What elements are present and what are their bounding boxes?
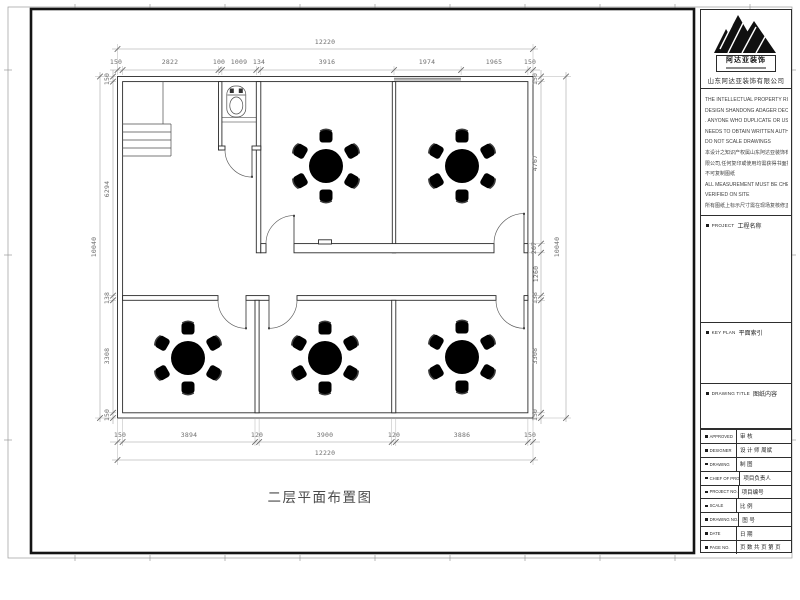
- bullet-icon: [706, 224, 709, 227]
- disclaimer-line: ALL MEASUREMENT MUST BE CHECKED AND: [705, 180, 788, 191]
- dim-label: 10040: [90, 237, 98, 258]
- row-label: CHIEF OF PRO: [710, 476, 740, 481]
- dim-label: 1260: [532, 266, 540, 282]
- bullet-icon: [705, 505, 708, 508]
- row-label: PROJECT NO.: [710, 489, 738, 494]
- bullet-icon: [705, 546, 708, 549]
- disclaimer-line: 不可复制图纸: [705, 169, 788, 180]
- drawing-title-section: DRAWING TITLE 图纸内容: [701, 384, 791, 429]
- bullet-icon: [706, 392, 709, 395]
- dim-label: 150: [524, 431, 536, 439]
- info-row: APPROVED 审 核: [701, 429, 791, 443]
- row-value: 制 图: [737, 460, 753, 468]
- dim-label: 150: [531, 409, 539, 421]
- dim-label: 3894: [181, 431, 197, 439]
- info-row: PROJECT NO. 项目编号: [701, 485, 791, 499]
- dim-label: 12220: [315, 38, 336, 46]
- company-logo-mountains-icon: [714, 13, 778, 53]
- section-label-cn: 图纸内容: [753, 389, 777, 398]
- section-label-en: PROJECT: [712, 223, 735, 228]
- project-section: PROJECT 工程名称: [701, 216, 791, 323]
- dim-label: 3886: [454, 431, 470, 439]
- bullet-icon: [706, 331, 709, 334]
- row-value: 比 例: [737, 502, 753, 510]
- bullet-icon: [705, 518, 708, 521]
- bullet-icon: [705, 491, 708, 494]
- dim-label: 3308: [531, 348, 539, 364]
- bullet-icon: [705, 532, 708, 535]
- title-block: 阿达亚装饰 山东阿达亚装饰有限公司 THE INTELLECTUAL PROPE…: [700, 9, 792, 553]
- row-label: DRAWING NO.: [710, 517, 739, 522]
- section-label-cn: 平面索引: [739, 328, 763, 337]
- row-value: 页 数 共 页 第 页: [737, 543, 781, 551]
- disclaimer-line: 本设计之知识产权属山东阿达亚装饰有: [705, 148, 788, 159]
- dim-label: 1009: [231, 58, 247, 66]
- dim-label: 3900: [317, 431, 333, 439]
- section-label-en: KEY PLAN: [712, 330, 736, 335]
- dim-label: 1965: [486, 58, 502, 66]
- dim-label: 10040: [553, 237, 561, 258]
- dim-label: 150: [110, 58, 122, 66]
- dim-label: 6294: [103, 181, 111, 197]
- key-plan-section: KEY PLAN 平面索引: [701, 323, 791, 384]
- row-label: SCALE: [710, 503, 724, 508]
- dim-label: 138: [531, 292, 539, 304]
- disclaimer-line: 限公司,任何复印或使用均需获得书面授权.: [705, 159, 788, 170]
- info-row: SCALE 比 例: [701, 498, 791, 512]
- dim-label: 138: [103, 292, 111, 304]
- dim-label: 150: [531, 73, 539, 85]
- dim-label: 2822: [162, 58, 178, 66]
- logo-text: 阿达亚装饰: [717, 57, 775, 65]
- row-label: APPROVED: [710, 434, 733, 439]
- dim-label: 150: [524, 58, 536, 66]
- disclaimer-line: DO NOT SCALE DRAWINGS: [705, 137, 788, 148]
- row-value: 项目编号: [739, 488, 764, 496]
- bullet-icon: [705, 463, 708, 466]
- disclaimer-line: THE INTELLECTUAL PROPERTY RIGHT OF THIS: [705, 95, 788, 106]
- logo-section: 阿达亚装饰 山东阿达亚装饰有限公司: [701, 10, 791, 89]
- section-label-en: DRAWING TITLE: [712, 391, 750, 396]
- bullet-icon: [705, 435, 708, 438]
- dim-label: 3916: [319, 58, 335, 66]
- logo-subtext-strip: [726, 67, 766, 70]
- row-value: 项目负责人: [740, 474, 771, 482]
- dim-label: 1974: [419, 58, 435, 66]
- row-value: 日 期: [737, 530, 753, 538]
- disclaimer-section: THE INTELLECTUAL PROPERTY RIGHT OF THIS …: [701, 89, 791, 216]
- section-label-cn: 工程名称: [737, 221, 761, 230]
- row-value: 设 计 师 周斌: [737, 446, 772, 454]
- info-row: DESIGNER 设 计 师 周斌: [701, 443, 791, 457]
- dim-label: 267: [530, 242, 538, 254]
- company-name: 山东阿达亚装饰有限公司: [701, 75, 791, 85]
- info-row: PAGE NO. 页 数 共 页 第 页: [701, 540, 791, 554]
- dim-label: 150: [103, 73, 111, 85]
- info-row: DATE 日 期: [701, 526, 791, 540]
- row-label: DRAWING: [710, 462, 730, 467]
- bullet-icon: [705, 449, 708, 452]
- bullet-icon: [705, 477, 708, 480]
- dim-label: 134: [253, 58, 265, 66]
- info-row: DRAWING 制 图: [701, 457, 791, 471]
- dim-label: 150: [114, 431, 126, 439]
- dim-label: 4767: [531, 155, 539, 171]
- info-row: DRAWING NO. 图 号: [701, 512, 791, 526]
- row-label: DATE: [710, 531, 721, 536]
- info-row: CHIEF OF PRO 项目负责人: [701, 471, 791, 485]
- disclaimer-line: 所有图纸上标示尺寸需在现场复核修正: [705, 201, 788, 212]
- floor-plan-linework: [0, 0, 800, 600]
- row-label: PAGE NO.: [710, 545, 730, 550]
- row-value: 审 核: [737, 432, 753, 440]
- dim-label: 100: [213, 58, 225, 66]
- plan-title: 二层平面布置图: [268, 486, 373, 506]
- dim-label: 3308: [103, 348, 111, 364]
- disclaimer-line: . ANYONE WHO DUPLICATE OR USE: [705, 116, 788, 127]
- disclaimer-line: VERIFIED ON SITE: [705, 190, 788, 201]
- row-value: 图 号: [739, 516, 755, 524]
- logo-text-box: 阿达亚装饰: [716, 55, 776, 72]
- info-rows: APPROVED 审 核 DESIGNER 设 计 师 周斌 DRAWING 制…: [701, 429, 791, 554]
- dim-label: 12220: [315, 449, 336, 457]
- drawing-sheet: 12220 150 2822 100 1009 134 3916 1974 19…: [0, 0, 800, 600]
- row-label: DESIGNER: [710, 448, 732, 453]
- dim-label: 120: [251, 431, 263, 439]
- disclaimer-line: DESIGN SHANDONG ADAGER DECORATION CO.,LT…: [705, 106, 788, 117]
- dim-label: 120: [388, 431, 400, 439]
- disclaimer-line: NEEDS TO OBTAIN WRITTEN AUTHORIZATION: [705, 127, 788, 138]
- dim-label: 150: [103, 409, 111, 421]
